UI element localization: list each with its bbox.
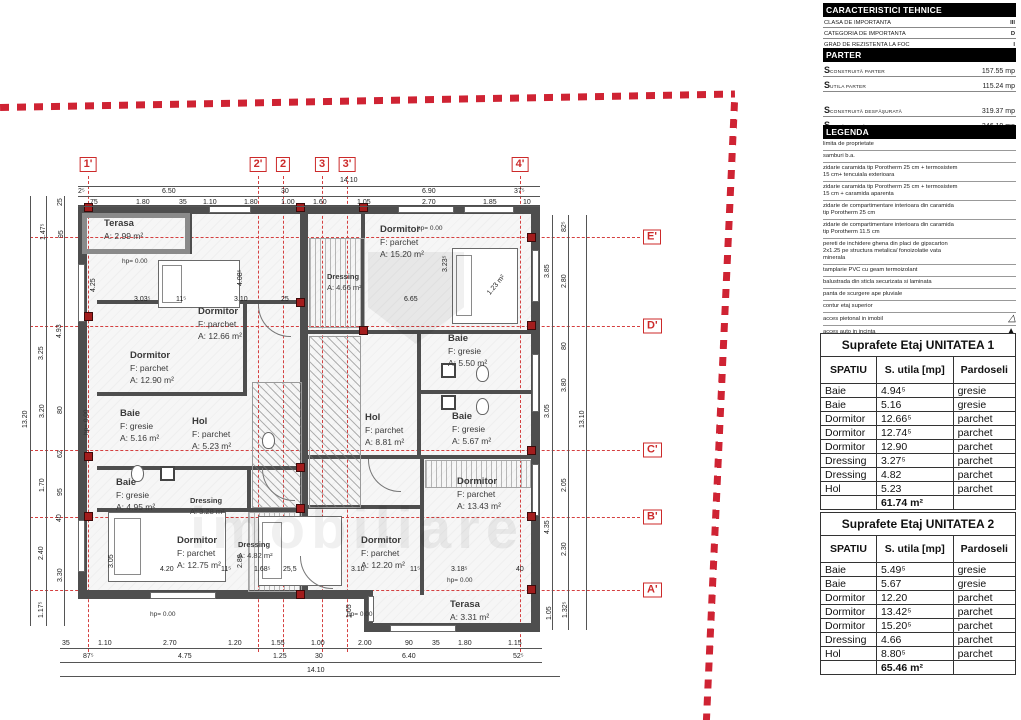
cell-floor: parchet	[953, 468, 1015, 482]
legend-row: acces pietonal in imobil △	[823, 313, 1016, 326]
wall	[419, 390, 531, 394]
table-row: Dormitor 15.20⁵ parchet	[821, 619, 1016, 633]
technical-characteristics-panel: CARACTERISTICI TEHNICE CLASA DE IMPORTAN…	[823, 3, 1016, 50]
dimension-label: 3.10	[234, 296, 248, 303]
room-name: Terasa	[450, 599, 489, 611]
room-name: Baie	[452, 411, 491, 423]
cell-spatiu: Dressing	[821, 633, 877, 647]
room-label: Baie F: gresie A: 5.16 m²	[120, 408, 159, 444]
cell-area: 4.82	[876, 468, 953, 482]
dimension-label: 62	[57, 450, 64, 458]
room-area: A: 15.20 m²	[380, 248, 424, 260]
room-name: Dormitor	[198, 306, 242, 318]
characteristic-label: CLASA DE IMPORTANTA	[824, 20, 891, 26]
grid-label-column: 3'	[339, 157, 356, 172]
window	[150, 592, 216, 599]
table-row: Hol 5.23 parchet	[821, 482, 1016, 496]
cell-spatiu: Hol	[821, 482, 877, 496]
property-line-vertical	[703, 102, 738, 720]
legend-label: limita de proprietate	[823, 141, 961, 148]
table-title: Suprafete Etaj UNITATEA 2	[821, 513, 1016, 536]
dimension-label: 10	[523, 199, 531, 206]
room-area: A: 5.23 m²	[192, 440, 231, 452]
cell-floor: parchet	[953, 482, 1015, 496]
area-row: SCONSTRUITĂ PARTER 157.55 mp	[823, 62, 1016, 77]
bed	[158, 260, 240, 308]
dimension-label: 11⁵	[410, 566, 420, 573]
dimension-label: 40	[516, 566, 524, 573]
dimension-label: 25	[57, 198, 64, 206]
cell-floor: gresie	[953, 398, 1015, 412]
legend-row: zidarie caramida tip Porotherm 25 cm + t…	[823, 163, 1016, 182]
room-area: A: 12.66 m²	[198, 330, 242, 342]
window	[532, 464, 539, 516]
cell-area: 12.90	[876, 440, 953, 454]
total-area: 61.74 m²	[876, 496, 953, 510]
cell-spatiu: Dormitor	[821, 426, 877, 440]
dimension-label: 1.20	[228, 640, 242, 647]
height-level-label: hp= 0.00	[417, 225, 442, 232]
legend-symbol-icon: △	[1008, 315, 1016, 323]
cell-floor: gresie	[953, 563, 1015, 577]
dimension-line	[78, 186, 540, 187]
room-name: Dormitor	[130, 350, 174, 362]
dimension-label: 2.80	[237, 554, 244, 568]
wall	[78, 590, 372, 599]
grid-label-column: 2'	[250, 157, 267, 172]
cell-spatiu: Baie	[821, 577, 877, 591]
dimension-label: 2.70	[422, 199, 436, 206]
room-label: Dormitor F: parchet A: 12.90 m²	[130, 350, 174, 386]
cell-spatiu: Dormitor	[821, 591, 877, 605]
concrete-core	[296, 463, 305, 472]
room-label: Dormitor F: parchet A: 12.66 m²	[198, 306, 242, 342]
room-floor-finish: F: parchet	[177, 547, 221, 559]
room-floor-finish: F: parchet	[192, 428, 231, 440]
room-name: Dressing	[238, 539, 273, 551]
cell-floor: gresie	[953, 384, 1015, 398]
height-level-label: hp= 0.00	[150, 611, 175, 618]
dimension-label: 1.55	[271, 640, 285, 647]
cell-spatiu: Dormitor	[821, 412, 877, 426]
concrete-core	[84, 512, 93, 521]
room-floor-finish: F: parchet	[457, 488, 501, 500]
dimension-line	[552, 215, 553, 630]
dimension-line	[78, 196, 540, 197]
dimension-label: 13.20	[22, 410, 29, 428]
room-label: Dormitor F: parchet A: 13.43 m²	[457, 476, 501, 512]
cell-floor: parchet	[953, 619, 1015, 633]
height-level-label: hp= 0.00	[347, 611, 372, 618]
dimension-line	[60, 648, 542, 649]
total-area: 65.46 m²	[876, 661, 953, 675]
terrace-wall	[82, 249, 190, 254]
dimension-label: 95	[57, 488, 64, 496]
cell-area: 13.42⁵	[876, 605, 953, 619]
room-name: Dormitor	[457, 476, 501, 488]
table-row: Dressing 4.82 parchet	[821, 468, 1016, 482]
grid-label-row: B'	[643, 510, 662, 525]
room-label: Baie F: gresie A: 5.67 m²	[452, 411, 491, 447]
dimension-label: 3.20	[39, 404, 46, 418]
legend-label: zidarie de compartimentare interioara di…	[823, 203, 961, 217]
cell-floor: parchet	[953, 591, 1015, 605]
legend-label: panta de scurgere ape pluviale	[823, 291, 961, 298]
grid-label-column: 4'	[512, 157, 529, 172]
panel-title: CARACTERISTICI TEHNICE	[823, 3, 1016, 17]
room-name: Dressing	[190, 495, 225, 507]
property-line-horizontal	[0, 91, 735, 111]
dimension-label: 1.10	[98, 640, 112, 647]
column-header: Pardoseli	[953, 536, 1015, 563]
room-area: A: 12.75 m²	[177, 559, 221, 571]
dimension-label: 3.18⁵	[451, 566, 468, 573]
characteristic-row: CATEGORIA DE IMPORTANTA D	[823, 28, 1016, 39]
wall	[243, 304, 247, 396]
area-value: 319.37 mp	[982, 108, 1015, 115]
cell-spatiu: Dressing	[821, 454, 877, 468]
dimension-label: 2⁵	[78, 188, 85, 195]
window	[532, 354, 539, 412]
total-row: 61.74 m²	[821, 496, 1016, 510]
room-area: A: 12.20 m²	[361, 559, 405, 571]
floor-plan-drawing: 1'2'233'4' E'D'C'B'A' Terasa A: 2.99 m² …	[0, 0, 820, 720]
dimension-label: 40	[56, 514, 63, 522]
room-floor-finish: F: gresie	[120, 420, 159, 432]
dimension-label: 25	[281, 296, 289, 303]
legend-row: samburi b.a.	[823, 151, 1016, 163]
legend-panel: LEGENDA limita de proprietate samburi b.…	[823, 125, 1016, 365]
wall	[417, 334, 421, 457]
legend-label: acces pietonal in imobil	[823, 316, 961, 323]
dimension-label: 3.80	[561, 378, 568, 392]
table-row: Baie 4.94⁵ gresie	[821, 384, 1016, 398]
dimension-label: 3.85	[544, 264, 551, 278]
cell-floor: gresie	[953, 577, 1015, 591]
room-name: Dressing	[327, 271, 362, 283]
concrete-core	[527, 233, 536, 242]
toilet	[262, 432, 275, 449]
room-name: Hol	[365, 412, 404, 424]
cell-area: 4.66	[876, 633, 953, 647]
room-area: A: 4.66 m²	[327, 283, 362, 292]
dimension-label: 4.08⁵	[237, 269, 244, 286]
unit2-areas-table: Suprafete Etaj UNITATEA 2 SPATIU S. util…	[820, 512, 1016, 675]
cell-area: 12.20	[876, 591, 953, 605]
legend-label: zidarie caramida tip Porotherm 25 cm + t…	[823, 165, 961, 179]
dimension-label: 30	[315, 653, 323, 660]
cell-spatiu: Dormitor	[821, 605, 877, 619]
dimension-label: 1.32⁵	[562, 601, 569, 618]
legend-label: zidarie caramida tip Porotherm 25 cm + t…	[823, 184, 961, 198]
window	[209, 206, 251, 213]
dimension-label: 52⁵	[513, 653, 524, 660]
cell-floor: parchet	[953, 426, 1015, 440]
room-label: Dressing A: 4.66 m²	[327, 271, 362, 292]
dimension-label: 11⁵	[176, 296, 186, 303]
area-row: SCONSTRUITĂ DESFĂŞURATĂ 319.37 mp	[823, 102, 1016, 117]
table-row: Hol 8.80⁵ parchet	[821, 647, 1016, 661]
sink	[160, 466, 175, 481]
dimension-label: 4.93	[56, 324, 63, 338]
table-row: Baie 5.16 gresie	[821, 398, 1016, 412]
characteristic-value: I	[1013, 42, 1015, 48]
cell-spatiu: Hol	[821, 647, 877, 661]
dimension-label: 14.10	[307, 667, 325, 674]
window	[464, 206, 514, 213]
cell-area: 12.66⁵	[876, 412, 953, 426]
area-value: 157.55 mp	[982, 68, 1015, 75]
table-row: Dormitor 12.74⁵ parchet	[821, 426, 1016, 440]
dimension-label: 13.10	[579, 410, 586, 428]
column-header: SPATIU	[821, 536, 877, 563]
room-floor-finish: F: gresie	[116, 489, 155, 501]
height-level-label: hp= 0.00	[83, 410, 90, 435]
table-row: Dressing 4.66 parchet	[821, 633, 1016, 647]
grid-label-column: 1'	[80, 157, 97, 172]
legend-label: balustrada din sticla securizata si lami…	[823, 279, 961, 286]
cell-spatiu: Dormitor	[821, 619, 877, 633]
room-name: Dormitor	[361, 535, 405, 547]
dimension-label: 2.30	[561, 542, 568, 556]
dimension-label: 90	[405, 640, 413, 647]
table-row: Dormitor 12.90 parchet	[821, 440, 1016, 454]
room-area: A: 4.95 m²	[116, 501, 155, 513]
cell-floor: parchet	[953, 440, 1015, 454]
dimension-label: 3.05	[544, 404, 551, 418]
dimension-label: 1.05	[546, 606, 553, 620]
room-area: A: 8.81 m²	[365, 436, 404, 448]
dimension-label: 1.68⁵	[254, 566, 271, 573]
dimension-label: 6.50	[162, 188, 176, 195]
height-level-label: hp= 0.00	[122, 258, 147, 265]
legend-row: zidarie de compartimentare interioara di…	[823, 220, 1016, 239]
cell-floor: parchet	[953, 647, 1015, 661]
unit1-areas-table: Suprafete Etaj UNITATEA 1 SPATIU S. util…	[820, 333, 1016, 510]
dimension-label: 2.00	[358, 640, 372, 647]
dimension-label: 6.65	[404, 296, 418, 303]
cell-area: 5.49⁵	[876, 563, 953, 577]
window	[368, 596, 374, 622]
legend-row: pereti de inchidere ghena din placi de g…	[823, 239, 1016, 265]
room-label: Terasa A: 2.99 m²	[104, 218, 143, 242]
dimension-line	[568, 215, 569, 630]
cell-spatiu: Baie	[821, 563, 877, 577]
dimension-label: 35	[179, 199, 187, 206]
dimension-label: 1.60	[313, 199, 327, 206]
room-name: Baie	[448, 333, 487, 345]
area-label: SCONSTRUITĂ DESFĂŞURATĂ	[824, 105, 902, 115]
dimension-line	[60, 662, 542, 663]
room-name: Baie	[116, 477, 155, 489]
room-floor-finish: F: parchet	[198, 318, 242, 330]
cell-area: 12.74⁵	[876, 426, 953, 440]
dimension-label: 35	[62, 640, 70, 647]
dimension-label: 4.35	[544, 520, 551, 534]
room-floor-finish: F: parchet	[365, 424, 404, 436]
dimension-label: 3.03⁵	[134, 296, 151, 303]
room-label: Dressing A: 3.28 m²	[190, 495, 225, 516]
room-floor-finish: F: parchet	[361, 547, 405, 559]
dimension-label: 80	[57, 406, 64, 414]
dimension-label: 2.05	[561, 478, 568, 492]
concrete-core	[527, 585, 536, 594]
dimension-label: 6.90	[422, 188, 436, 195]
cell-spatiu: Dressing	[821, 468, 877, 482]
room-floor-finish: F: gresie	[452, 423, 491, 435]
dimension-line	[60, 676, 560, 677]
concrete-core	[296, 203, 305, 212]
concrete-core	[527, 321, 536, 330]
concrete-core	[527, 446, 536, 455]
legend-row: balustrada din sticla securizata si lami…	[823, 277, 1016, 289]
dimension-label: 4.75	[178, 653, 192, 660]
area-label: SCONSTRUITĂ PARTER	[824, 65, 885, 75]
characteristic-value: III	[1010, 20, 1015, 26]
panel-title: PARTER	[823, 48, 1016, 62]
cell-area: 4.94⁵	[876, 384, 953, 398]
legend-row: zidarie de compartimentare interioara di…	[823, 201, 1016, 220]
grid-label-column: 2	[276, 157, 290, 172]
column-header: S. utila [mp]	[876, 536, 953, 563]
column-header: SPATIU	[821, 357, 877, 384]
dimension-label: 1.00	[311, 640, 325, 647]
legend-label: contur etaj superior	[823, 303, 961, 310]
dimension-label: 14.10	[340, 177, 358, 184]
dimension-label: 1.70	[39, 478, 46, 492]
table-row: Dormitor 12.20 parchet	[821, 591, 1016, 605]
room-area: A: 5.67 m²	[452, 435, 491, 447]
dimension-label: 3.05	[108, 554, 115, 568]
table-row: Dormitor 13.42⁵ parchet	[821, 605, 1016, 619]
room-floor-finish: F: parchet	[130, 362, 174, 374]
room-name: Baie	[120, 408, 159, 420]
dimension-label: 35	[432, 640, 440, 647]
dimension-label: 25,5	[283, 566, 297, 573]
concrete-core	[84, 312, 93, 321]
legend-row: limita de proprietate	[823, 139, 1016, 151]
dimension-line	[586, 215, 587, 630]
concrete-core	[296, 298, 305, 307]
room-floor-finish: F: parchet	[380, 236, 424, 248]
legend-row: contur etaj superior	[823, 301, 1016, 313]
dimension-label: 2.70	[163, 640, 177, 647]
concrete-core	[359, 326, 368, 335]
cell-area: 8.80⁵	[876, 647, 953, 661]
dimension-label: 2.80	[561, 274, 568, 288]
height-level-label: hp= 0.00	[447, 577, 472, 584]
room-label: Hol F: parchet A: 5.23 m²	[192, 416, 231, 452]
stair-hatch	[309, 336, 361, 508]
dimension-line	[30, 196, 31, 626]
dimension-label: 4.20	[160, 566, 174, 573]
dimension-line	[64, 196, 65, 626]
parter-areas-panel: PARTER SCONSTRUITĂ PARTER 157.55 mp SUTI…	[823, 48, 1016, 132]
dimension-line	[78, 206, 540, 207]
dimension-label: 6.40	[402, 653, 416, 660]
dimension-label: 1.85	[483, 199, 497, 206]
legend-label: tamplarie PVC cu geam termoizolant	[823, 267, 961, 274]
dimension-label: 1.80	[458, 640, 472, 647]
floor-plan-sheet: 1'2'233'4' E'D'C'B'A' Terasa A: 2.99 m² …	[0, 0, 1021, 720]
table-row: Baie 5.49⁵ gresie	[821, 563, 1016, 577]
window	[390, 625, 456, 632]
dimension-label: 3.25	[38, 346, 45, 360]
sink	[441, 395, 456, 410]
legend-row: zidarie caramida tip Porotherm 25 cm + t…	[823, 182, 1016, 201]
area-value: 115.24 mp	[982, 83, 1015, 90]
dimension-label: 1.05	[357, 199, 371, 206]
legend-label: zidarie de compartimentare interioara di…	[823, 222, 961, 236]
column-header: Pardoseli	[953, 357, 1015, 384]
room-label: Baie F: gresie A: 5.50 m²	[448, 333, 487, 369]
legend-label: samburi b.a.	[823, 153, 961, 160]
cell-floor: parchet	[953, 454, 1015, 468]
concrete-core	[296, 590, 305, 599]
cell-spatiu: Baie	[821, 398, 877, 412]
window	[398, 206, 454, 213]
room-label: Dormitor F: parchet A: 12.75 m²	[177, 535, 221, 571]
room-area: A: 12.90 m²	[130, 374, 174, 386]
dimension-label: 1.47⁵	[40, 223, 47, 240]
grid-label-row: D'	[643, 319, 662, 334]
legend-row: panta de scurgere ape pluviale	[823, 289, 1016, 301]
table-row: Dressing 3.27⁵ parchet	[821, 454, 1016, 468]
dimension-label: 82⁵	[561, 221, 568, 232]
dimension-label: 1.17⁵	[38, 601, 45, 618]
dimension-label: 3.10	[351, 566, 365, 573]
room-area: A: 3.28 m²	[190, 507, 225, 516]
room-area: A: 5.16 m²	[120, 432, 159, 444]
dimension-label: 80	[561, 342, 568, 350]
table-title: Suprafete Etaj UNITATEA 1	[821, 334, 1016, 357]
window	[532, 250, 539, 302]
grid-label-column: 3	[315, 157, 329, 172]
legend-symbol: △	[972, 315, 1016, 323]
terrace-wall	[82, 213, 87, 253]
dimension-label: 3.30	[57, 568, 64, 582]
characteristic-value: D	[1011, 31, 1015, 37]
dimension-line	[46, 196, 47, 626]
total-row: 65.46 m²	[821, 661, 1016, 675]
dimension-label: 1.00	[281, 199, 295, 206]
dimension-label: 95	[58, 230, 65, 238]
room-area: A: 13.43 m²	[457, 500, 501, 512]
concrete-core	[84, 452, 93, 461]
dimension-label: 3.23⁵	[442, 255, 449, 272]
table-row: Dormitor 12.66⁵ parchet	[821, 412, 1016, 426]
cell-area: 5.23	[876, 482, 953, 496]
characteristic-label: CATEGORIA DE IMPORTANTA	[824, 31, 906, 37]
grid-label-row: E'	[643, 230, 661, 245]
grid-label-row: C'	[643, 443, 662, 458]
column-header: S. utila [mp]	[876, 357, 953, 384]
room-label: Terasa A: 3.31 m²	[450, 599, 489, 623]
cell-floor: parchet	[953, 605, 1015, 619]
cell-area: 3.27⁵	[876, 454, 953, 468]
window	[78, 520, 85, 572]
cell-spatiu: Baie	[821, 384, 877, 398]
cell-spatiu: Dormitor	[821, 440, 877, 454]
area-row: SUTILA PARTER 115.24 mp	[823, 77, 1016, 92]
cell-area: 5.16	[876, 398, 953, 412]
legend-label: pereti de inchidere ghena din placi de g…	[823, 241, 961, 262]
dimension-label: 11⁵	[221, 566, 231, 573]
characteristic-label: GRAD DE REZISTENTA LA FOC	[824, 42, 910, 48]
cell-area: 5.67	[876, 577, 953, 591]
wall	[97, 392, 245, 396]
cell-floor: parchet	[953, 633, 1015, 647]
